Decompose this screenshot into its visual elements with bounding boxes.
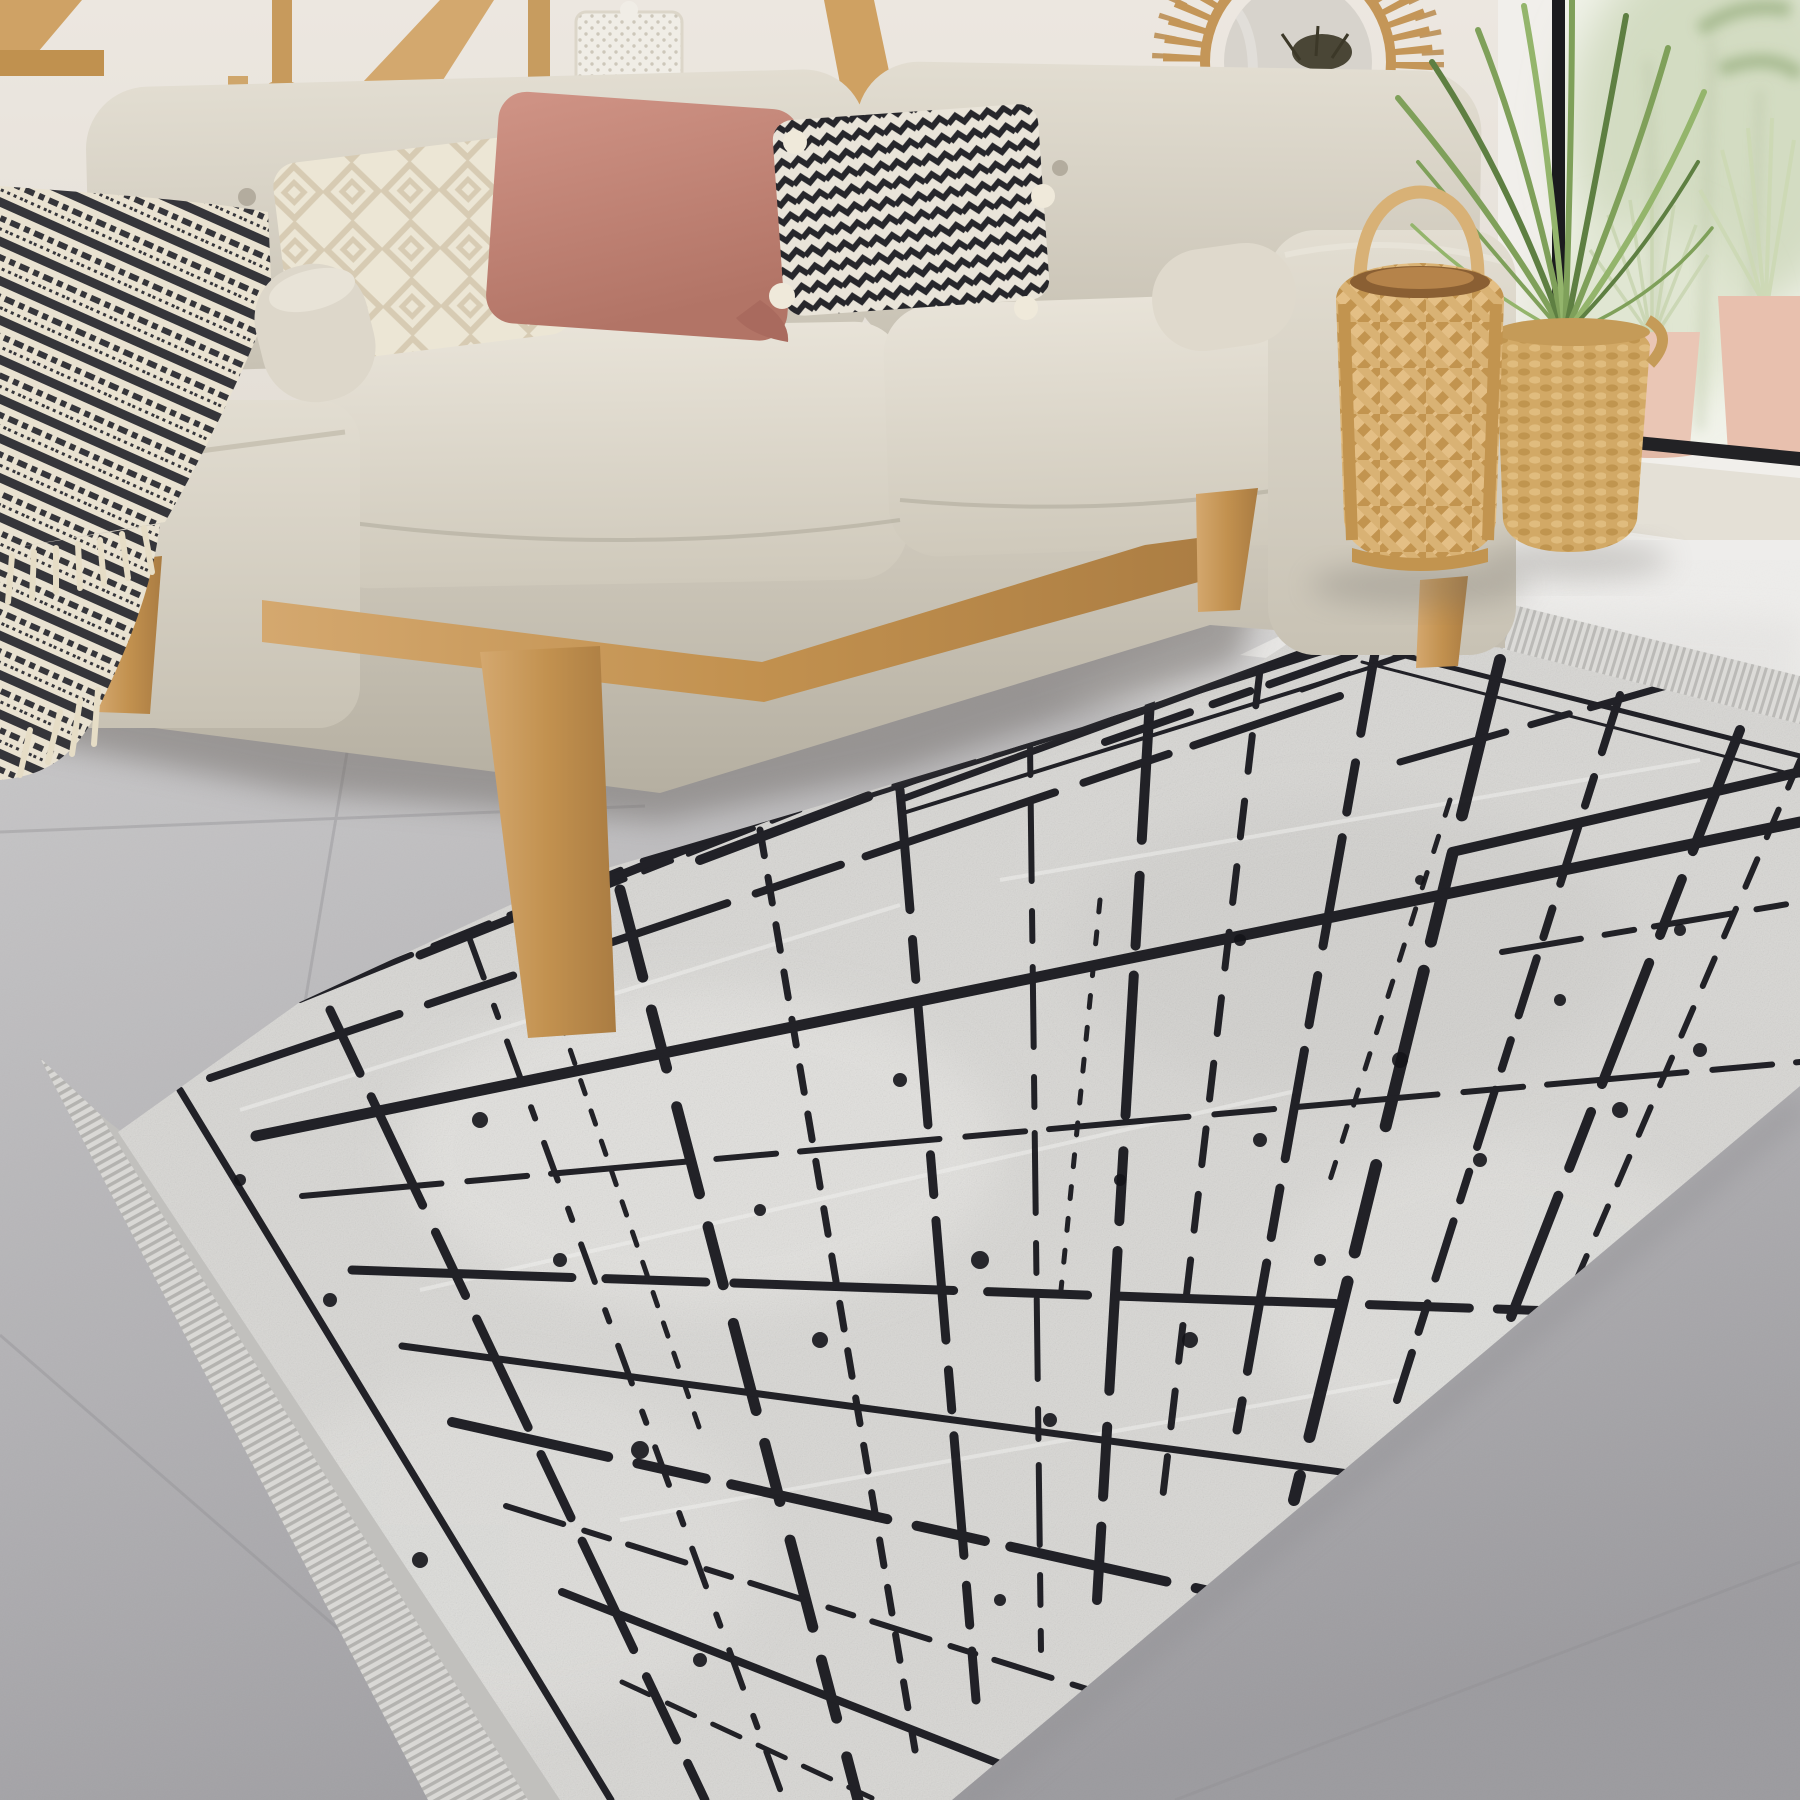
pillow-chevron: [769, 103, 1055, 320]
living-room-photo: [0, 0, 1800, 1800]
pillow-pink: [484, 90, 801, 343]
tufting-button: [238, 188, 256, 206]
sofa-seat-cushion-left: [316, 321, 908, 589]
plant-basket: [1484, 318, 1662, 552]
tufting-button: [1052, 160, 1068, 176]
trestle-leg: [528, 0, 550, 88]
